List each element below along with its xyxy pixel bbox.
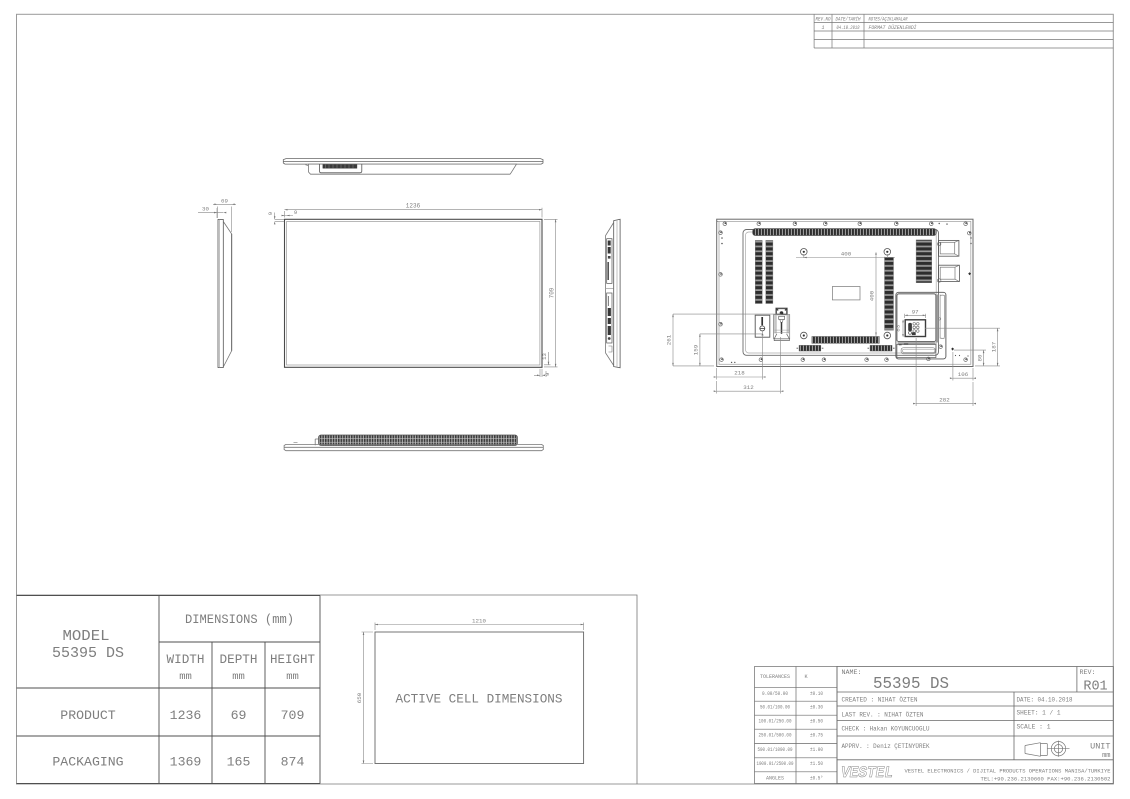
svg-text:SHEET: 1 / 1: SHEET: 1 / 1 (1017, 710, 1061, 717)
svg-text:mm: mm (1102, 752, 1110, 760)
svg-text:mm: mm (286, 671, 299, 683)
svg-text:1210: 1210 (472, 618, 486, 625)
svg-text:VESTEL: VESTEL (841, 764, 893, 782)
svg-text:83: 83 (895, 324, 902, 331)
svg-text:100.01/250.00: 100.01/250.00 (759, 719, 792, 725)
svg-text:650: 650 (356, 692, 363, 703)
svg-text:159: 159 (692, 344, 699, 355)
svg-text:55395 DS: 55395 DS (52, 646, 124, 662)
svg-text:mm: mm (232, 671, 245, 683)
svg-text:106: 106 (958, 371, 969, 378)
svg-text:30: 30 (202, 206, 209, 213)
svg-text:312: 312 (743, 384, 754, 391)
svg-text:1: 1 (821, 25, 824, 31)
svg-text:DATE/TARİH: DATE/TARİH (836, 15, 861, 22)
svg-text:REV:: REV: (1080, 669, 1096, 676)
svg-text:APPRV. : Deniz ÇETİNYÜREK: APPRV. : Deniz ÇETİNYÜREK (842, 742, 930, 750)
svg-text:HEIGHT: HEIGHT (270, 652, 315, 667)
svg-text:69: 69 (231, 708, 247, 723)
svg-text:1236: 1236 (170, 708, 202, 723)
svg-text:1236: 1236 (406, 203, 421, 210)
svg-text:REV.NO: REV.NO (816, 16, 831, 22)
svg-text:709: 709 (281, 708, 305, 723)
svg-text:±0.50: ±0.50 (810, 719, 823, 725)
svg-text:400: 400 (869, 290, 876, 301)
svg-text:400: 400 (841, 251, 852, 258)
svg-text:218: 218 (734, 370, 745, 377)
svg-text:165: 165 (227, 755, 251, 770)
svg-text:50.01/100.00: 50.01/100.00 (760, 705, 790, 711)
svg-text:±1.00: ±1.00 (810, 747, 823, 753)
svg-text:261: 261 (666, 334, 673, 345)
svg-text:1000.01/2500.00: 1000.01/2500.00 (757, 761, 794, 767)
svg-text:DEPTH: DEPTH (220, 652, 258, 667)
svg-text:CHECK : Hakan KOYUNCUOGLU: CHECK : Hakan KOYUNCUOGLU (842, 726, 930, 733)
svg-text:PACKAGING: PACKAGING (52, 755, 123, 770)
svg-text:MODEL: MODEL (63, 629, 110, 645)
svg-text:±0.75: ±0.75 (810, 733, 823, 739)
svg-text:TOLERANCES: TOLERANCES (760, 674, 790, 680)
svg-text:282: 282 (939, 396, 950, 403)
svg-text:97: 97 (912, 308, 919, 315)
svg-text:mm: mm (179, 671, 192, 683)
svg-text:NOTES/AÇIKLAMALAR: NOTES/AÇIKLAMALAR (869, 16, 908, 22)
svg-text:FORMAT DÜZENLENDİ: FORMAT DÜZENLENDİ (869, 24, 917, 31)
svg-text:ANGLES: ANGLES (766, 775, 784, 781)
svg-text:187: 187 (990, 341, 997, 352)
svg-text:SCALE : 1: SCALE : 1 (1017, 724, 1051, 731)
svg-text:±1.50: ±1.50 (810, 761, 823, 767)
svg-text:55395 DS: 55395 DS (873, 674, 949, 693)
svg-text:UNIT: UNIT (1090, 742, 1110, 752)
svg-text:NAME:: NAME: (842, 669, 862, 677)
svg-text:±0.10: ±0.10 (810, 691, 823, 697)
svg-text:±0.5°: ±0.5° (810, 775, 823, 781)
svg-text:CREATED : NIHAT ÖZTEN: CREATED : NIHAT ÖZTEN (842, 696, 918, 704)
svg-text:04.10.2018: 04.10.2018 (837, 25, 860, 31)
svg-text:DIMENSIONS (mm): DIMENSIONS (mm) (185, 612, 294, 627)
svg-text:WIDTH: WIDTH (167, 652, 205, 667)
svg-text:80: 80 (976, 354, 983, 361)
svg-text:9: 9 (544, 373, 551, 376)
svg-text:9: 9 (267, 212, 274, 215)
svg-text:9: 9 (294, 209, 297, 216)
svg-text:DATE: 04.10.2018: DATE: 04.10.2018 (1017, 697, 1073, 704)
svg-text:TEL:+90.236.2130660 FAX:+90.23: TEL:+90.236.2130660 FAX:+90.236.2130502 (981, 776, 1112, 783)
svg-text:PRODUCT: PRODUCT (60, 708, 115, 723)
svg-text:709: 709 (548, 287, 555, 298)
svg-text:874: 874 (281, 755, 305, 770)
svg-text:LAST REV. : NIHAT ÖZTEN: LAST REV. : NIHAT ÖZTEN (842, 711, 924, 719)
svg-text:500.01/1000.00: 500.01/1000.00 (758, 747, 793, 753)
svg-text:R01: R01 (1083, 680, 1107, 695)
svg-text:0.00/50.00: 0.00/50.00 (762, 691, 788, 697)
svg-text:250.01/500.00: 250.01/500.00 (759, 733, 792, 739)
svg-text:69: 69 (221, 197, 228, 204)
svg-text:13: 13 (541, 353, 548, 360)
svg-text:VESTEL ELECTRONICS / DIJITAL P: VESTEL ELECTRONICS / DIJITAL PRODUCTS OP… (905, 768, 1112, 775)
svg-text:±0.30: ±0.30 (810, 705, 823, 711)
svg-text:1369: 1369 (170, 755, 202, 770)
svg-text:ACTIVE CELL DIMENSIONS: ACTIVE CELL DIMENSIONS (396, 692, 563, 707)
